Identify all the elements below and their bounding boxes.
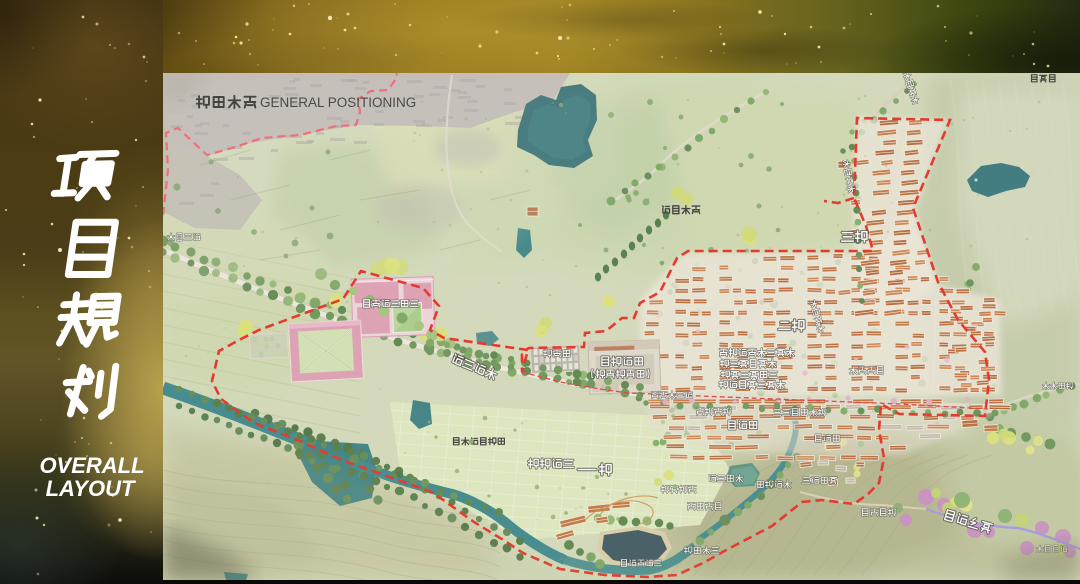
- svg-text:LAYOUT: LAYOUT: [46, 476, 136, 501]
- svg-text:OVERALL: OVERALL: [39, 453, 144, 478]
